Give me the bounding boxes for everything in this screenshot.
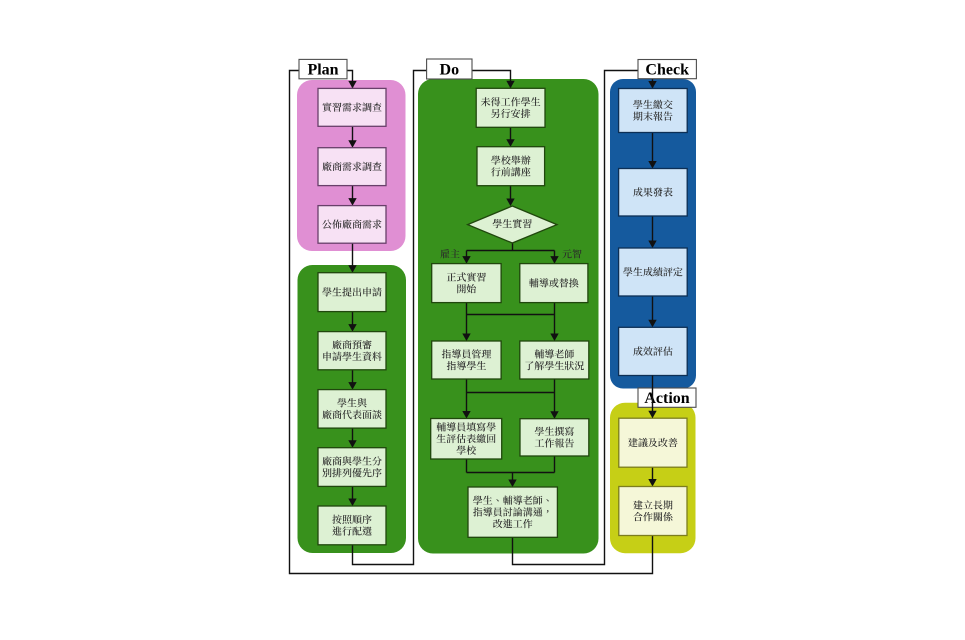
svg-text:Action: Action <box>644 390 689 407</box>
svg-text:Check: Check <box>645 62 689 79</box>
svg-text:Do: Do <box>440 62 460 79</box>
svg-text:Plan: Plan <box>307 62 338 79</box>
